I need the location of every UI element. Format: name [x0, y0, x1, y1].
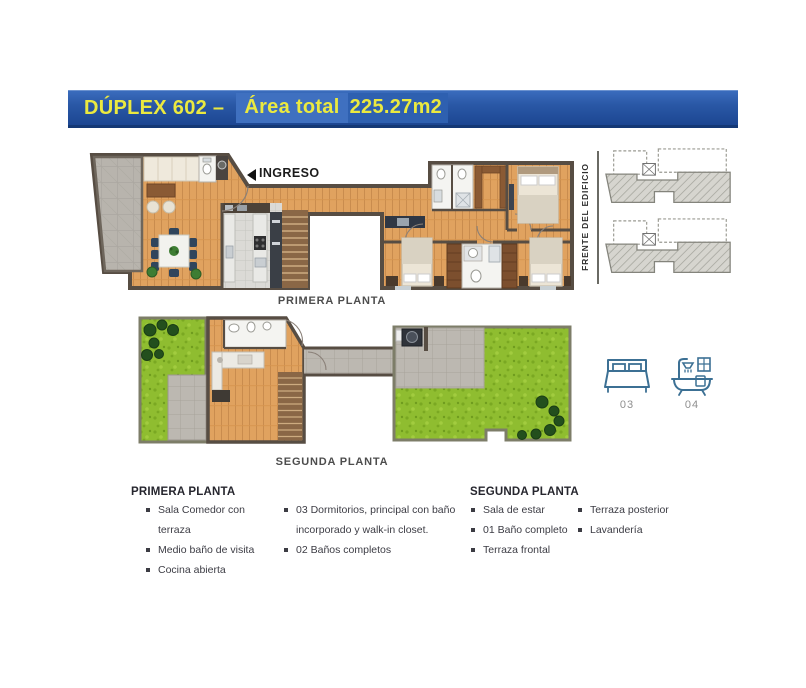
- bullet-icon: [578, 528, 582, 532]
- bullet-icon: [471, 508, 475, 512]
- list-item-text: 02 Baños completos: [296, 544, 391, 556]
- plan1-armchair: [163, 201, 175, 213]
- bullet-icon: [146, 508, 150, 512]
- bullet-icon: [146, 548, 150, 552]
- floor-plan-segunda: [138, 316, 574, 446]
- segunda-list-heading: SEGUNDA PLANTA: [470, 486, 579, 498]
- bullet-icon: [471, 548, 475, 552]
- entrance-arrow-icon: [247, 169, 256, 181]
- list-item: 02 Baños completos: [283, 540, 471, 560]
- primera-list-heading: PRIMERA PLANTA: [131, 486, 235, 498]
- segunda-list-col2: Terraza posterior Lavandería: [577, 500, 707, 540]
- unit-title: DÚPLEX 602 –: [84, 97, 224, 120]
- entrance-label: INGRESO: [259, 166, 319, 180]
- plan1-half-bath: [199, 156, 228, 182]
- area-value: 225.27m2: [348, 93, 448, 123]
- list-item: Cocina abierta: [145, 560, 280, 580]
- list-item: Medio baño de visita: [145, 540, 280, 560]
- list-item: Terraza frontal: [470, 540, 574, 560]
- plan1-rug: [147, 184, 175, 197]
- plan1-bathrooms: [432, 165, 473, 210]
- list-item-text: Terraza posterior: [590, 504, 669, 516]
- plan2-corridor: [304, 348, 396, 375]
- list-item: Terraza posterior: [577, 500, 707, 520]
- list-item-text: Terraza frontal: [483, 544, 550, 556]
- list-item-text: Sala Comedor con terraza: [158, 504, 245, 536]
- plan1-bathroom-center: [462, 244, 502, 288]
- floor-plan-primera: [85, 150, 575, 292]
- plan2-stone-path: [168, 375, 206, 440]
- plan1-plant: [147, 267, 157, 277]
- primera-list-col2: 03 Dormitorios, principal con baño incor…: [283, 500, 471, 560]
- key-plan-upper: [602, 147, 736, 213]
- header-bar: DÚPLEX 602 – Área total 225.27m2: [68, 90, 738, 128]
- bathtub-icon: [669, 355, 715, 399]
- list-item-text: Lavandería: [590, 524, 643, 536]
- list-item: Lavandería: [577, 520, 707, 540]
- plan1-sofa: [144, 157, 199, 181]
- bullet-icon: [146, 568, 150, 572]
- plan2-stairs: [278, 372, 302, 440]
- bedrooms-count: 03: [604, 399, 650, 411]
- building-front-label: FRENTE DEL EDIFICIO: [580, 147, 592, 287]
- plan1-wardrobe: [447, 244, 462, 288]
- list-item: Sala de estar: [470, 500, 574, 520]
- plan1-plant: [191, 269, 201, 279]
- plan2-laundry: [396, 327, 484, 388]
- divider-line: [597, 151, 599, 284]
- list-item-text: Cocina abierta: [158, 564, 226, 576]
- plan1-stairs: [282, 210, 308, 288]
- plan1-kitchen: [222, 203, 282, 288]
- bullet-icon: [578, 508, 582, 512]
- area-label: Área total: [236, 93, 347, 123]
- bullet-icon: [284, 548, 288, 552]
- plan1-window: [395, 286, 411, 290]
- segunda-list-col1: Sala de estar 01 Baño completo Terraza f…: [470, 500, 574, 560]
- list-item: 01 Baño completo: [470, 520, 574, 540]
- plan2-caption: SEGUNDA PLANTA: [232, 456, 432, 468]
- plan1-wardrobe: [502, 244, 517, 288]
- list-item: Sala Comedor con terraza: [145, 500, 280, 540]
- list-item-text: Sala de estar: [483, 504, 545, 516]
- bathrooms-count: 04: [669, 399, 715, 411]
- plan1-window: [540, 286, 556, 290]
- slide: DÚPLEX 602 – Área total 225.27m2: [0, 0, 806, 688]
- bullet-icon: [471, 528, 475, 532]
- plan1-armchair: [147, 201, 159, 213]
- list-item-text: 03 Dormitorios, principal con baño incor…: [296, 504, 455, 536]
- primera-list-col1: Sala Comedor con terraza Medio baño de v…: [145, 500, 280, 580]
- list-item: 03 Dormitorios, principal con baño incor…: [283, 500, 471, 540]
- key-plan-lower: [602, 217, 736, 283]
- plan1-caption: PRIMERA PLANTA: [232, 295, 432, 307]
- bed-icon: [604, 357, 650, 399]
- bullet-icon: [284, 508, 288, 512]
- list-item-text: 01 Baño completo: [483, 524, 568, 536]
- list-item-text: Medio baño de visita: [158, 544, 254, 556]
